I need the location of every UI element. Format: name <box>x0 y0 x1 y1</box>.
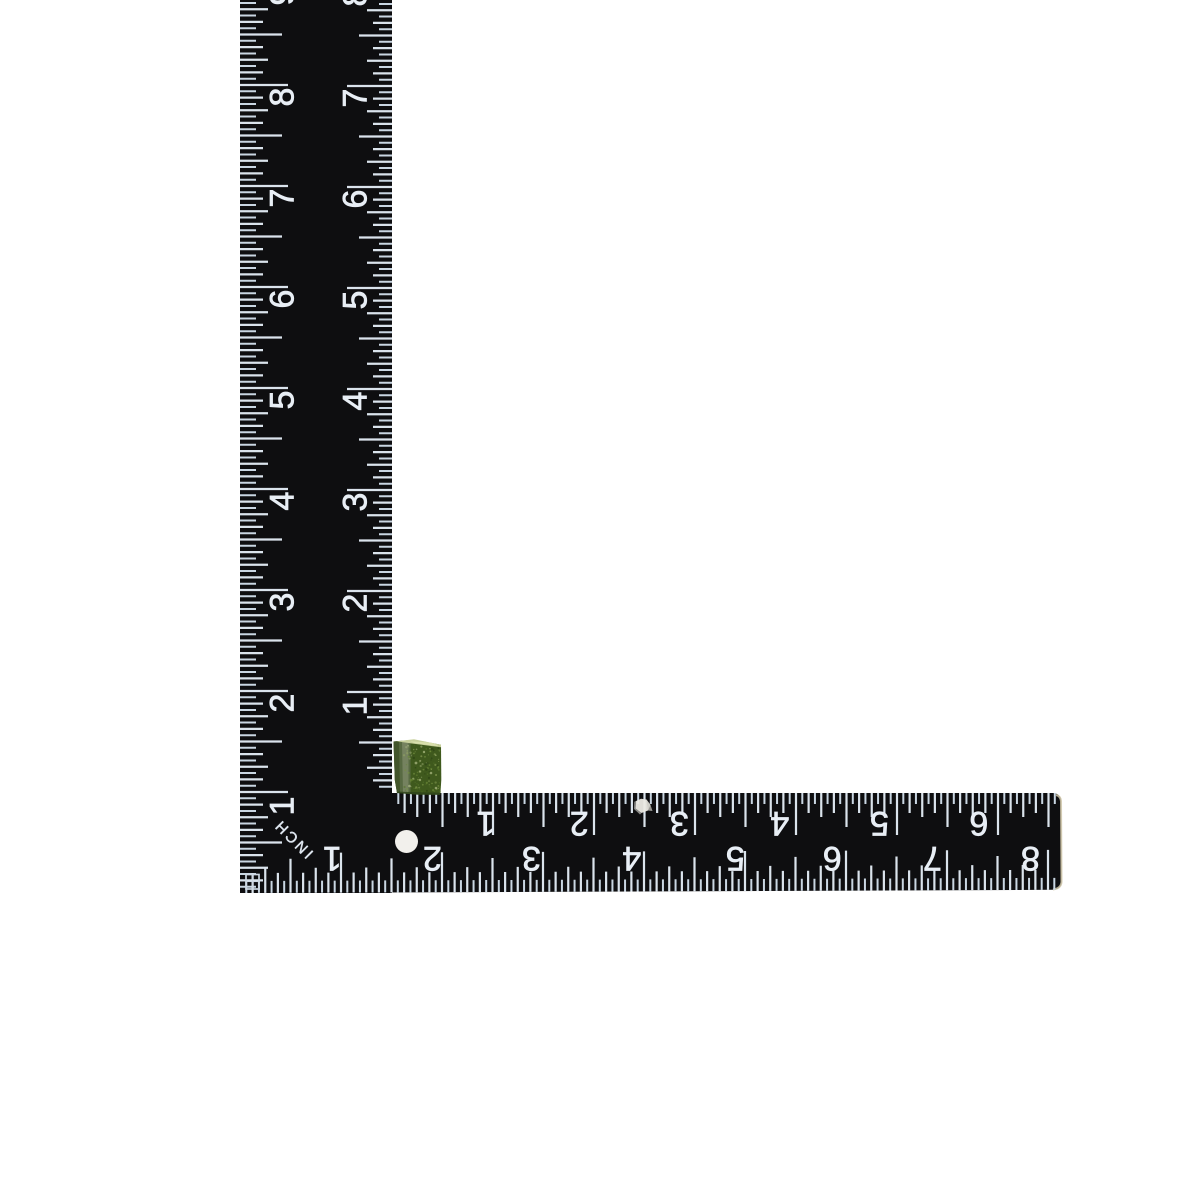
svg-text:8: 8 <box>264 88 302 107</box>
svg-text:6: 6 <box>264 290 302 309</box>
svg-text:2: 2 <box>570 804 589 842</box>
svg-text:4: 4 <box>770 804 789 842</box>
svg-text:4: 4 <box>622 839 641 877</box>
svg-text:6: 6 <box>969 804 988 842</box>
svg-text:1: 1 <box>264 797 302 816</box>
svg-text:3: 3 <box>670 804 689 842</box>
svg-text:4: 4 <box>264 492 302 511</box>
svg-text:5: 5 <box>337 291 375 310</box>
svg-text:3: 3 <box>522 839 541 877</box>
svg-text:2: 2 <box>264 694 302 713</box>
svg-text:5: 5 <box>726 839 745 877</box>
svg-text:5: 5 <box>870 804 889 842</box>
svg-text:6: 6 <box>337 190 375 209</box>
svg-text:5: 5 <box>264 391 302 410</box>
svg-text:1: 1 <box>476 804 495 842</box>
svg-text:3: 3 <box>337 493 375 512</box>
svg-text:2: 2 <box>337 594 375 613</box>
svg-text:7: 7 <box>337 89 375 108</box>
svg-text:1: 1 <box>323 839 342 877</box>
svg-text:6: 6 <box>823 839 842 877</box>
svg-text:9: 9 <box>264 0 302 5</box>
svg-text:8: 8 <box>337 0 375 6</box>
svg-text:7: 7 <box>264 189 302 208</box>
svg-text:8: 8 <box>1021 839 1040 877</box>
svg-text:3: 3 <box>264 593 302 612</box>
svg-text:4: 4 <box>337 392 375 411</box>
svg-text:1: 1 <box>337 697 375 716</box>
svg-text:7: 7 <box>923 839 942 877</box>
svg-text:2: 2 <box>423 839 442 877</box>
